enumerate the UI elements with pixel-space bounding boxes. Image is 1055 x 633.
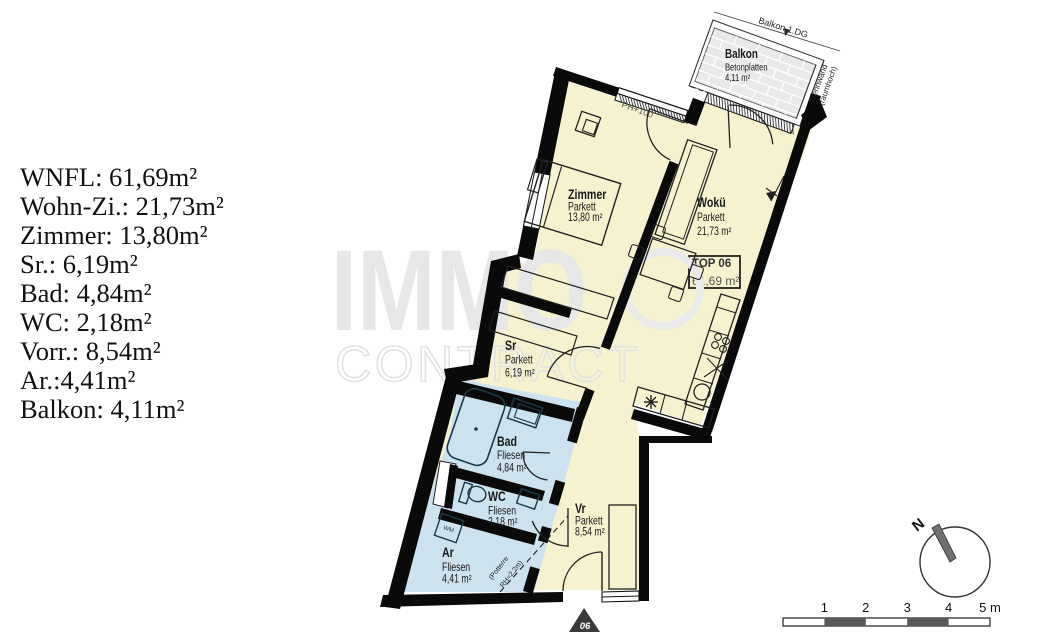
svg-text:Ar: Ar bbox=[442, 545, 454, 561]
svg-text:4,41 m²: 4,41 m² bbox=[442, 573, 472, 585]
svg-text:4: 4 bbox=[945, 600, 952, 615]
svg-text:Bad: Bad bbox=[497, 434, 517, 450]
svg-text:4,11 m²: 4,11 m² bbox=[725, 72, 750, 83]
svg-text:4,84 m²: 4,84 m² bbox=[497, 462, 527, 474]
svg-text:3: 3 bbox=[904, 600, 911, 615]
svg-text:N: N bbox=[909, 515, 928, 535]
svg-text:Ar.:4,41m²: Ar.:4,41m² bbox=[20, 365, 135, 395]
svg-text:06: 06 bbox=[580, 621, 591, 632]
svg-text:Zimmer: 13,80m²: Zimmer: 13,80m² bbox=[20, 220, 208, 250]
svg-text:6,19 m²: 6,19 m² bbox=[505, 367, 535, 379]
svg-text:Zimmer: Zimmer bbox=[568, 187, 607, 203]
svg-text:Wokü: Wokü bbox=[697, 195, 726, 211]
svg-text:Vorr.: 8,54m²: Vorr.: 8,54m² bbox=[20, 336, 161, 366]
svg-text:Wohn-Zi.: 21,73m²: Wohn-Zi.: 21,73m² bbox=[20, 191, 224, 221]
svg-text:Vr: Vr bbox=[575, 501, 586, 517]
svg-text:Balkon: Balkon bbox=[725, 48, 758, 62]
svg-text:2,18 m²: 2,18 m² bbox=[488, 516, 518, 528]
svg-text:Parkett: Parkett bbox=[697, 212, 725, 224]
svg-text:Bad: 4,84m²: Bad: 4,84m² bbox=[20, 278, 152, 308]
svg-text:Fliesen: Fliesen bbox=[497, 450, 525, 462]
svg-text:21,73 m²: 21,73 m² bbox=[697, 226, 732, 238]
svg-text:WNFL: 61,69m²: WNFL: 61,69m² bbox=[20, 162, 197, 192]
svg-text:8,54 m²: 8,54 m² bbox=[575, 526, 605, 538]
svg-text:Sr: Sr bbox=[505, 338, 516, 354]
svg-text:1: 1 bbox=[821, 600, 828, 615]
svg-text:Sr.: 6,19m²: Sr.: 6,19m² bbox=[20, 249, 138, 279]
svg-text:13,80 m²: 13,80 m² bbox=[568, 212, 603, 224]
svg-text:5 m: 5 m bbox=[979, 600, 1001, 615]
svg-text:Parkett: Parkett bbox=[505, 354, 533, 366]
svg-text:2: 2 bbox=[862, 600, 869, 615]
svg-text:Balkon: 4,11m²: Balkon: 4,11m² bbox=[20, 394, 185, 424]
svg-text:WC: 2,18m²: WC: 2,18m² bbox=[20, 307, 152, 337]
svg-text:WC: WC bbox=[488, 489, 506, 505]
